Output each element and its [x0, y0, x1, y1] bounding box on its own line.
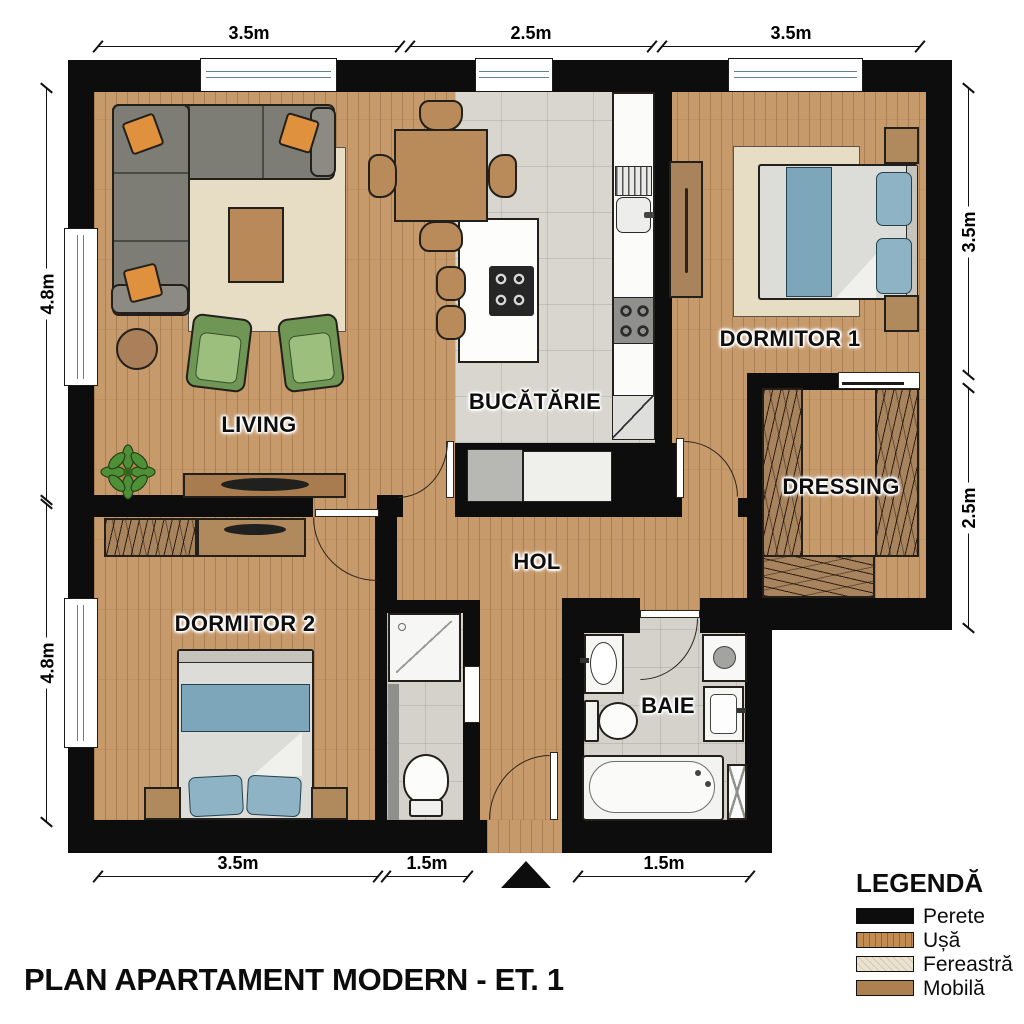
counter-lower-white: [523, 451, 612, 502]
dining-chair-right: [488, 154, 517, 198]
dishwasher: [612, 395, 655, 440]
bath-sink-basin: [590, 642, 617, 685]
washing-machine-door-icon: [713, 646, 736, 669]
dining-chair-top: [419, 100, 463, 131]
nightstand2-left: [144, 787, 181, 820]
legend-label-furniture: Mobilă: [923, 977, 985, 1001]
wall-bottom-right: [562, 820, 772, 853]
legend-swatch-window: [856, 956, 914, 972]
shower-tray: [388, 613, 461, 682]
wc-toilet-bowl: [403, 754, 449, 804]
dim-right-1: 3.5m: [968, 88, 969, 375]
bathtub-inner: [589, 761, 715, 813]
armchair-2-seat: [288, 332, 336, 385]
wall-bottom-left: [68, 820, 487, 853]
armchair-2: [277, 313, 346, 394]
entrance-arrow-icon: [501, 861, 551, 888]
counter-stove: [613, 297, 654, 344]
dim-bottom-3: 1.5m: [578, 876, 750, 877]
dressing-wardrobe-right: [875, 388, 919, 557]
legend-label-door: Ușă: [923, 929, 960, 953]
window-living-left: [64, 228, 98, 386]
dressing-wardrobe-bottom: [762, 555, 875, 598]
legend-row-furniture: Mobilă: [856, 979, 1024, 997]
bath-toilet-bowl: [598, 702, 638, 740]
bed1-pillow-2: [876, 238, 912, 294]
nightstand2-right: [311, 787, 348, 820]
room-label-hall: HOL: [513, 549, 560, 575]
door-leaf-bedroom1: [676, 438, 684, 498]
wardrobe-handle: [685, 188, 688, 273]
room-label-bedroom1: DORMITOR 1: [720, 326, 861, 352]
plant-icon: [100, 444, 156, 500]
dining-table: [394, 129, 488, 222]
bath-sink2-tap: [737, 708, 746, 713]
nightstand1-bottom: [884, 295, 919, 332]
bath-sink-tap: [580, 658, 589, 663]
wall-bath-top-b: [700, 598, 745, 633]
dim-bottom-1: 3.5m: [98, 876, 378, 877]
door-leaf-bedroom2: [315, 509, 379, 517]
room-label-bathroom: BAIE: [641, 693, 695, 719]
bathtub: [582, 755, 724, 821]
coffee-table: [228, 207, 284, 283]
island-cooktop: [489, 266, 534, 316]
bath-sink2: [703, 686, 744, 742]
dim-top-1: 3.5m: [98, 46, 400, 47]
window-bedroom1-top: [728, 58, 863, 92]
bed1-pillow-1: [876, 172, 912, 226]
shower-diagonal: [396, 621, 452, 673]
bathtub-faucet-1: [695, 770, 701, 776]
bed2-blanket: [181, 684, 310, 732]
window-living-top: [200, 58, 337, 92]
wall-right: [926, 60, 952, 630]
legend-title: LEGENDĂ: [856, 868, 983, 899]
washing-machine: [702, 634, 747, 682]
island-chair-1: [436, 266, 466, 301]
wc-toilet-tank: [409, 799, 443, 817]
wall-bath-top-a: [562, 598, 640, 633]
bath-toilet-tank: [584, 700, 599, 742]
legend-row-window: Fereastră: [856, 955, 1024, 973]
legend-swatch-furniture: [856, 980, 914, 996]
sink-drainer: [615, 166, 652, 196]
wall-hall-bedroom2: [375, 517, 397, 613]
legend-label-window: Fereastră: [923, 953, 1013, 977]
window-bedroom2-left: [64, 598, 98, 748]
sliding-door-track: [842, 382, 904, 385]
floor-plan-page: LIVING BUCĂTĂRIE HOL DORMITOR 1 DORMITOR…: [0, 0, 1024, 1024]
door-wc-pocket: [464, 666, 480, 723]
door-dressing-sliding: [838, 372, 920, 389]
wall-hall-bedroom1-stub: [738, 498, 747, 517]
kitchen-counter-right: [612, 92, 655, 440]
dim-bottom-2: 1.5m: [386, 876, 468, 877]
wall-living-hall-b: [377, 495, 403, 517]
window-kitchen-top: [475, 58, 553, 92]
tv-living: [221, 478, 309, 491]
dim-left-1: 4.8m: [46, 88, 47, 500]
room-label-bedroom2: DORMITOR 2: [175, 611, 316, 637]
bedroom1-wardrobe: [669, 161, 703, 298]
bath-sink2-basin: [710, 694, 737, 734]
wc-ledge: [388, 684, 399, 820]
bed2-pillow-1: [188, 775, 244, 818]
entrance-floor-patch: [487, 820, 562, 853]
dining-chair-left: [368, 154, 397, 198]
legend-label-wall: Perete: [923, 905, 985, 929]
wall-dressing-bottom: [745, 598, 952, 630]
dim-top-2: 2.5m: [410, 46, 652, 47]
bathtub-faucet-2: [705, 781, 711, 787]
tv-bedroom2: [224, 524, 286, 535]
dim-right-2: 2.5m: [968, 388, 969, 628]
door-leaf-bathroom: [640, 610, 700, 618]
dim-left-2: 4.8m: [46, 504, 47, 822]
kitchen-sink-tap: [644, 212, 654, 218]
room-label-living: LIVING: [221, 412, 296, 438]
plan-title: PLAN APARTAMENT MODERN - ET. 1: [24, 962, 564, 998]
armchair-1: [185, 313, 254, 394]
armchair-1-seat: [195, 332, 243, 385]
outside-mask: [772, 630, 1024, 860]
dining-chair-bottom: [419, 221, 463, 252]
room-label-dressing: DRESSING: [782, 474, 899, 500]
legend-swatch-wall: [856, 908, 914, 924]
side-table-round: [116, 328, 158, 370]
dim-top-3: 3.5m: [662, 46, 920, 47]
island-chair-2: [436, 305, 466, 340]
dressing-wardrobe-left: [762, 388, 803, 557]
legend-row-door: Ușă: [856, 931, 1024, 949]
wall-bath-right: [745, 598, 772, 853]
nightstand1-top: [884, 127, 919, 164]
bedroom2-wardrobe: [104, 518, 197, 557]
counter-lower-gray: [467, 449, 523, 502]
bed2-pillow-2: [246, 775, 302, 818]
wall-wc-left: [375, 613, 387, 820]
bath-cabinet: [727, 764, 747, 820]
bed1-blanket: [786, 167, 832, 297]
legend-row-wall: Perete: [856, 907, 1024, 925]
room-label-kitchen: BUCĂTĂRIE: [469, 389, 601, 415]
legend-swatch-door: [856, 932, 914, 948]
door-leaf-entrance: [550, 752, 558, 820]
bed2-footboard: [179, 651, 312, 663]
